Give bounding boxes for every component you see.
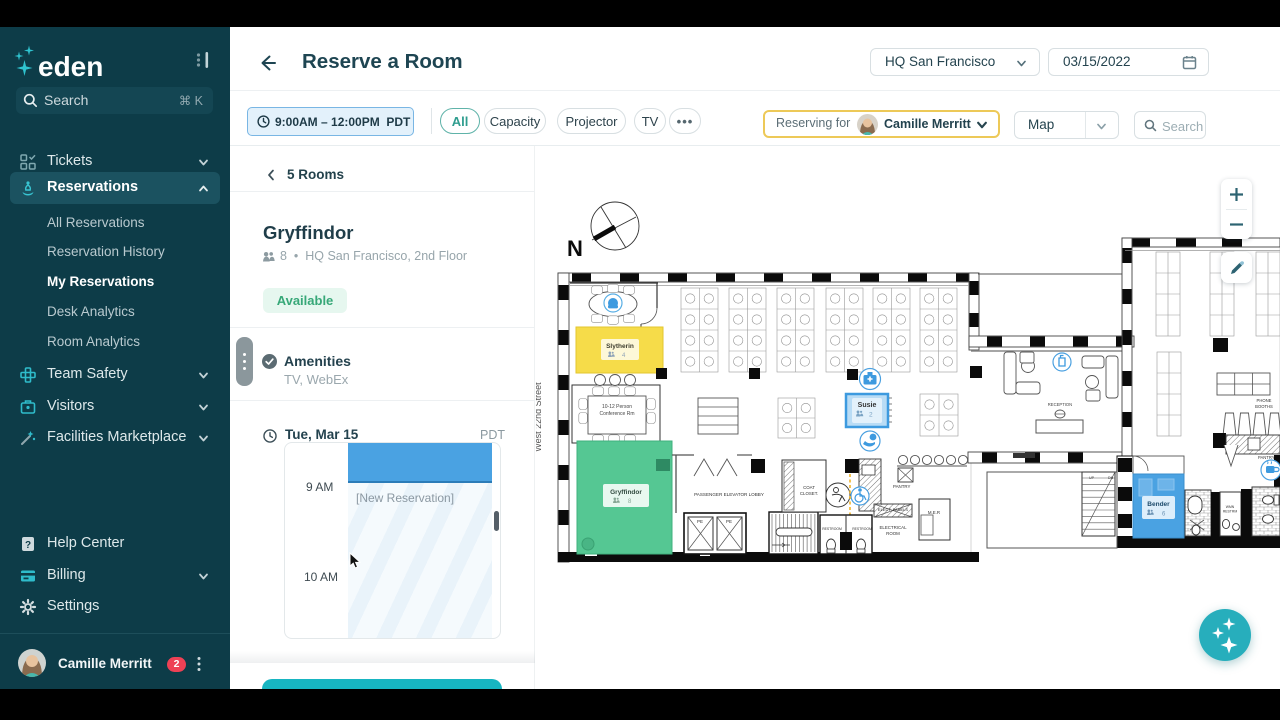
svg-text:2: 2	[869, 412, 873, 419]
svg-text:West 22nd Street: West 22nd Street	[536, 382, 543, 452]
svg-text:eden: eden	[38, 51, 103, 82]
svg-text:Gryffindor: Gryffindor	[610, 489, 642, 496]
svg-text:RESTROOM: RESTROOM	[822, 527, 842, 531]
svg-text:BOOTHS: BOOTHS	[1255, 404, 1273, 409]
svg-text:PE: PE	[697, 519, 703, 524]
svg-text:PANTRY: PANTRY	[893, 484, 910, 489]
svg-text:10-12 Person: 10-12 Person	[602, 404, 632, 410]
svg-text:PHONE: PHONE	[1257, 398, 1272, 403]
svg-text:RECEPTION: RECEPTION	[1048, 402, 1072, 407]
svg-text:RESTRM: RESTRM	[1223, 510, 1237, 514]
svg-text:PASSENGER ELEVATOR LOBBY: PASSENGER ELEVATOR LOBBY	[694, 492, 764, 497]
svg-text:ELECTRICAL: ELECTRICAL	[879, 525, 907, 530]
svg-text:PE: PE	[726, 519, 732, 524]
svg-text:Bender: Bender	[1147, 501, 1170, 508]
svg-text:RESTROOM: RESTROOM	[852, 527, 872, 531]
svg-text:WMN: WMN	[1226, 505, 1235, 509]
svg-text:Slytherin: Slytherin	[606, 343, 634, 350]
svg-text:DN: DN	[1108, 476, 1114, 480]
svg-text:?: ?	[25, 540, 31, 551]
svg-text:PANTRY: PANTRY	[1258, 455, 1275, 460]
svg-text:M.E.R: M.E.R	[928, 510, 940, 515]
svg-text:N: N	[567, 236, 583, 261]
svg-text:CLOSET.: CLOSET.	[800, 491, 818, 496]
svg-text:ROOM: ROOM	[886, 531, 900, 536]
svg-text:Conference Rm: Conference Rm	[599, 411, 634, 417]
svg-text:ELECT. PANELS: ELECT. PANELS	[878, 507, 908, 512]
svg-text:COAT: COAT	[803, 485, 815, 490]
svg-text:Susie: Susie	[858, 402, 877, 409]
svg-text:UP: UP	[1089, 476, 1095, 480]
